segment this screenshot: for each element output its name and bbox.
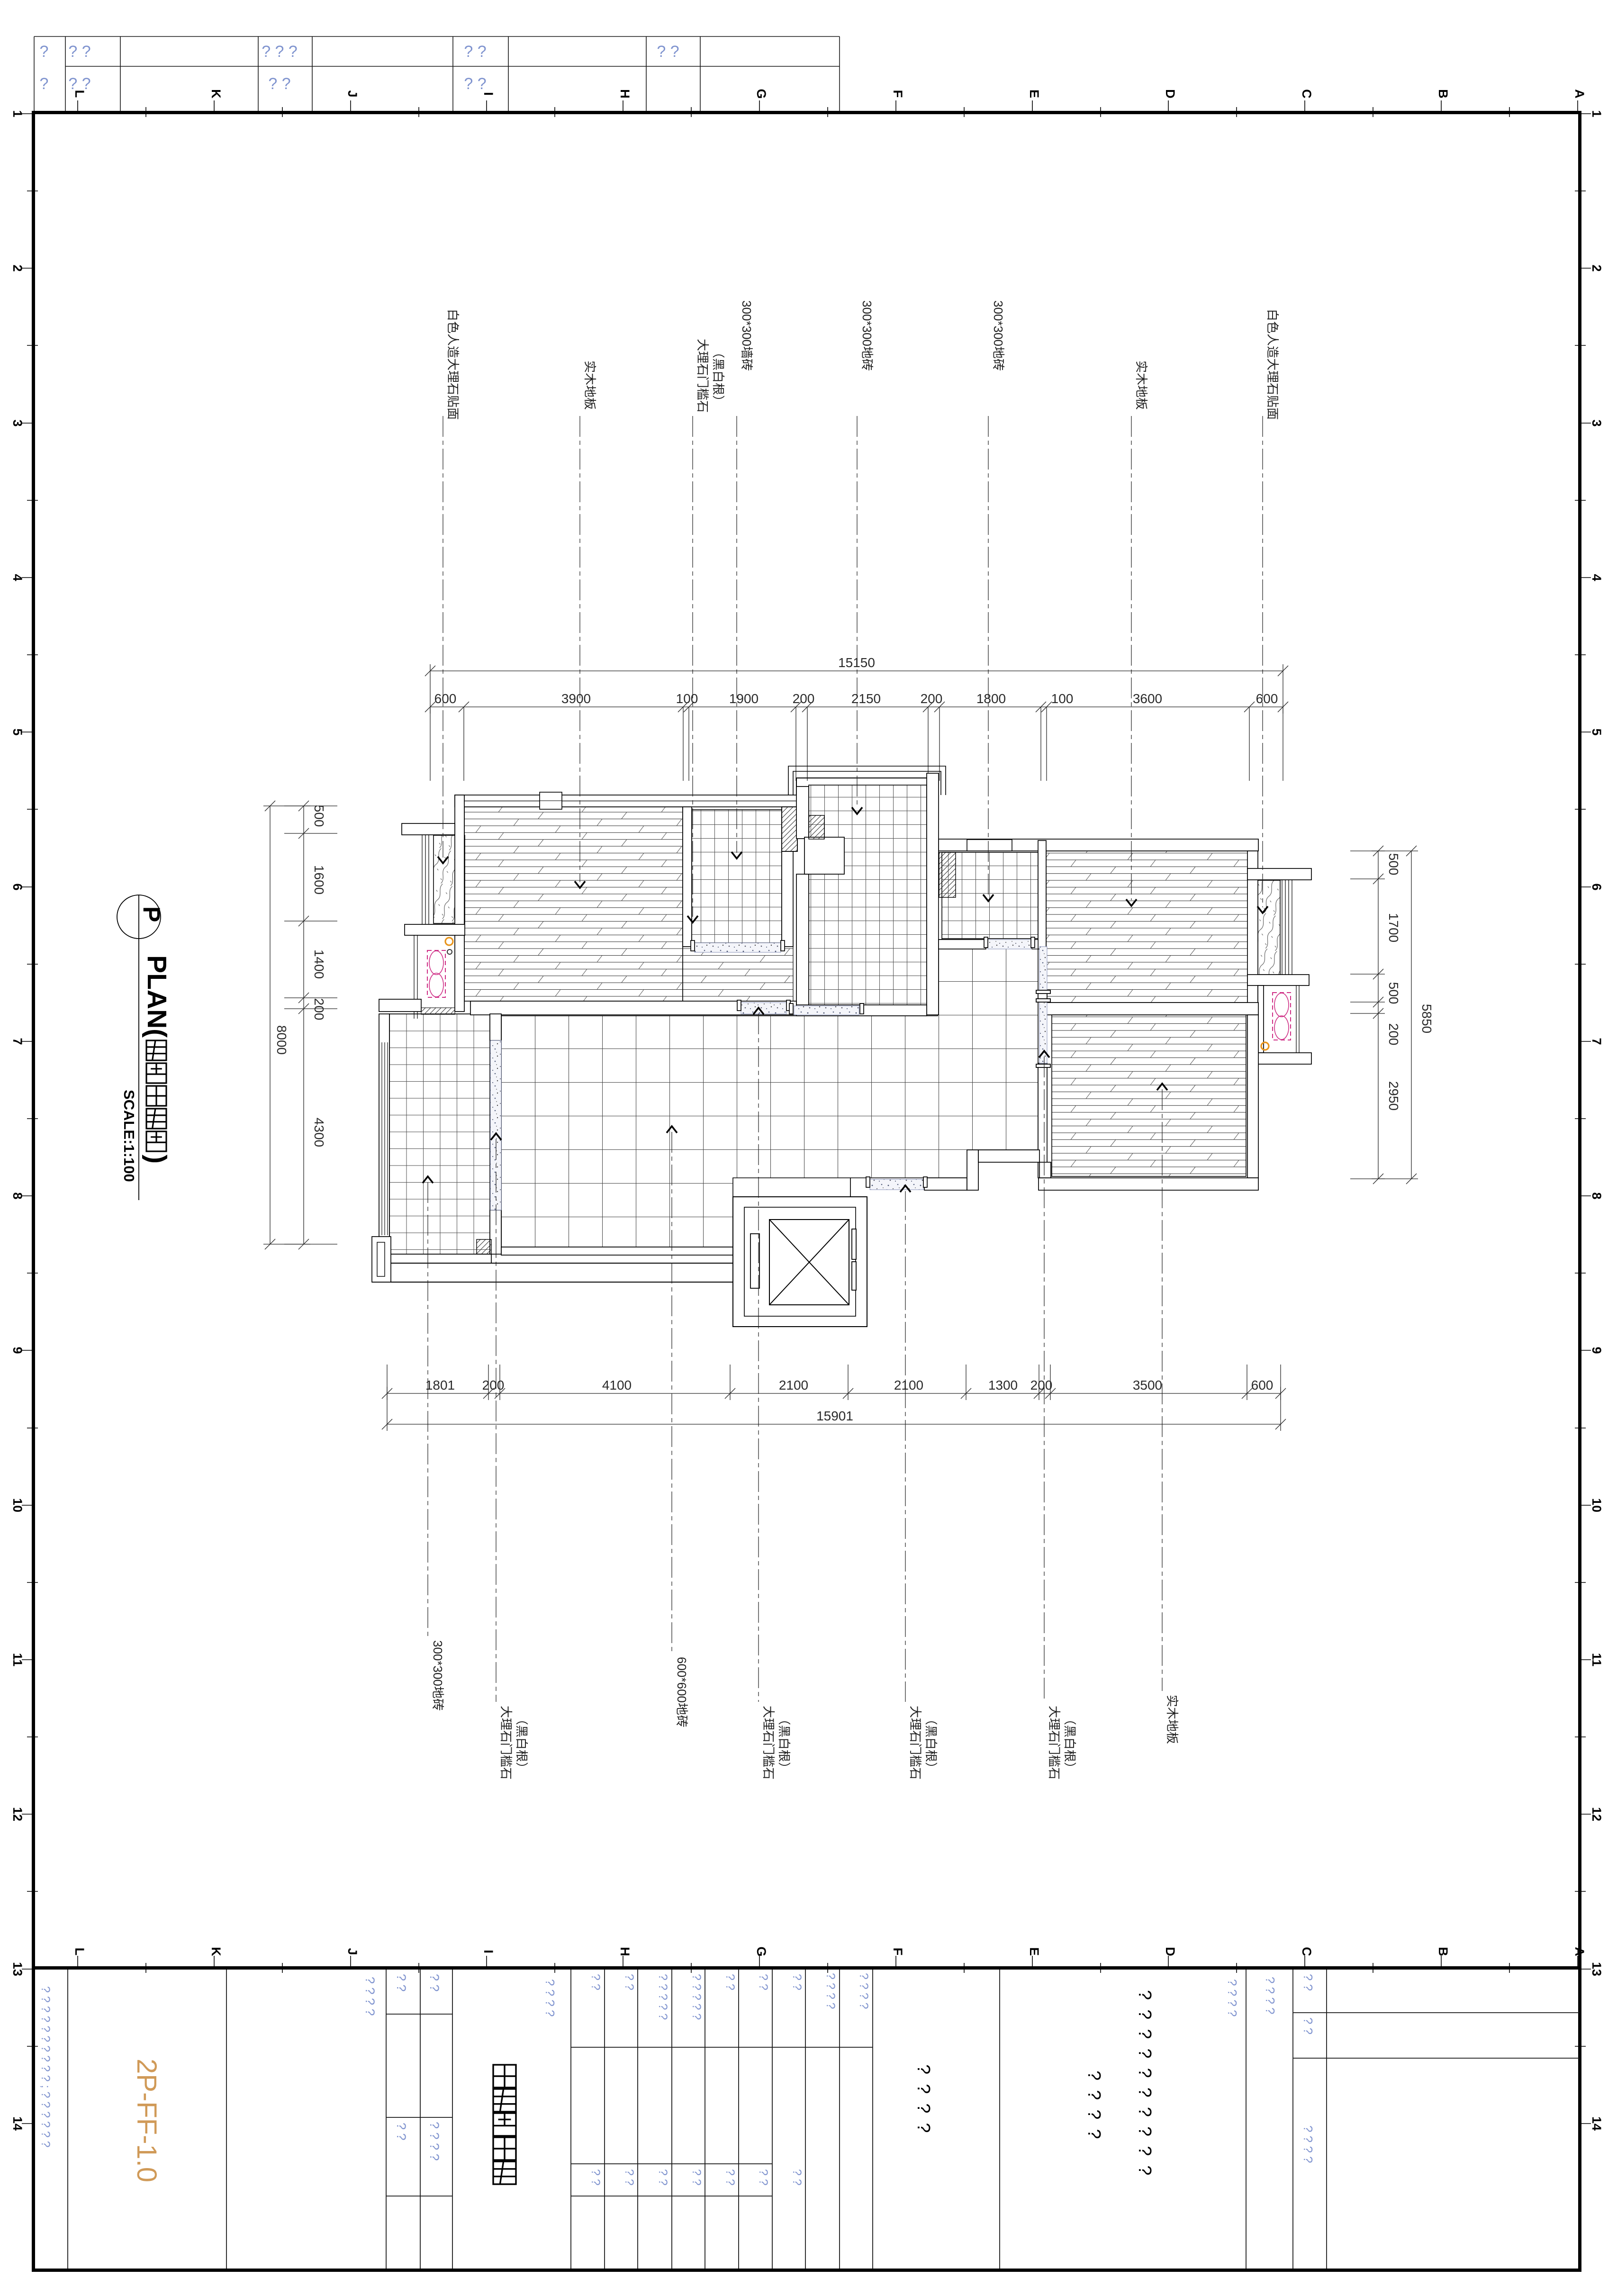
svg-text:? ?: ? ? xyxy=(589,2169,602,2186)
svg-text:? ?: ? ? xyxy=(723,1974,737,1990)
svg-text:大理石门槛石: 大理石门槛石 xyxy=(696,339,710,413)
svg-text:? ?: ? ? xyxy=(68,43,90,61)
svg-text:1400: 1400 xyxy=(312,949,326,979)
svg-text:B: B xyxy=(1436,89,1450,99)
svg-text:实木地板: 实木地板 xyxy=(1134,361,1148,410)
svg-text:（黑白根）: （黑白根） xyxy=(924,1713,938,1774)
svg-text:? ? ? ?: ? ? ? ? xyxy=(1263,1977,1277,2015)
svg-text:10: 10 xyxy=(1590,1498,1604,1512)
svg-text:H: H xyxy=(618,89,632,99)
svg-text:??????????: ?????????? xyxy=(1135,1990,1155,2185)
svg-text:?: ? xyxy=(40,75,49,93)
svg-text:B: B xyxy=(1436,1947,1450,1956)
svg-text:（黑白根）: （黑白根） xyxy=(1063,1713,1077,1774)
svg-text:2150: 2150 xyxy=(851,691,881,706)
svg-text:? ?: ? ? xyxy=(757,2169,770,2186)
svg-text:5: 5 xyxy=(1590,728,1604,735)
svg-text:（黑白根）: （黑白根） xyxy=(515,1713,529,1774)
svg-text:? ?: ? ? xyxy=(464,43,486,61)
svg-text:200: 200 xyxy=(1030,1378,1053,1392)
svg-text:? ?: ? ? xyxy=(1301,1974,1315,1991)
svg-text:13: 13 xyxy=(1590,1962,1604,1976)
svg-text:2: 2 xyxy=(1590,264,1604,271)
svg-text:? ?: ? ? xyxy=(790,2169,804,2186)
svg-text:? ? ? ?: ? ? ? ? xyxy=(857,1973,870,2009)
svg-text:7: 7 xyxy=(1590,1038,1604,1045)
svg-text:? ?: ? ? xyxy=(589,1974,602,1990)
svg-text:600: 600 xyxy=(1251,1378,1274,1392)
svg-text:I: I xyxy=(481,1950,496,1953)
svg-text:? ?: ? ? xyxy=(427,1974,442,1992)
svg-text:P: P xyxy=(138,906,165,922)
svg-text:14: 14 xyxy=(1590,2116,1604,2131)
svg-text:F: F xyxy=(891,1948,905,1956)
svg-text:实木地板: 实木地板 xyxy=(583,361,597,410)
svg-text:? ? ? ? ?: ? ? ? ? ? xyxy=(690,1974,703,2020)
svg-text:? ?: ? ? xyxy=(723,2169,737,2186)
svg-text:3500: 3500 xyxy=(1133,1378,1162,1392)
svg-text:J: J xyxy=(345,1948,360,1955)
svg-text:? ?: ? ? xyxy=(623,2169,636,2186)
svg-text:大理石门槛石: 大理石门槛石 xyxy=(908,1706,922,1780)
svg-text:? ? ? ?: ? ? ? ? xyxy=(543,1979,557,2017)
svg-text:2100: 2100 xyxy=(894,1378,923,1392)
svg-text:3600: 3600 xyxy=(1133,691,1162,706)
svg-text:C: C xyxy=(1300,1947,1314,1956)
svg-text:J: J xyxy=(345,90,360,97)
svg-text:白色人造大理石贴面: 白色人造大理石贴面 xyxy=(446,309,460,420)
svg-text:1801: 1801 xyxy=(425,1378,455,1392)
svg-text:2950: 2950 xyxy=(1386,1081,1401,1111)
svg-text:500: 500 xyxy=(1386,982,1401,1004)
svg-text:3: 3 xyxy=(1590,419,1604,426)
svg-text:E: E xyxy=(1027,1947,1041,1956)
svg-text:1300: 1300 xyxy=(988,1378,1018,1392)
svg-text:? ? ? ? ? ? ? ? ? ? ; ? ? ? ?: ? ? ? ? ? ? ? ? ? ? ; ? ? ? ? ? ? xyxy=(39,1986,52,2148)
svg-text:12: 12 xyxy=(1590,1807,1604,1821)
svg-text:K: K xyxy=(209,1947,223,1956)
svg-text:I: I xyxy=(481,92,496,96)
svg-text:500: 500 xyxy=(312,805,326,827)
svg-text:A: A xyxy=(1572,1947,1587,1956)
svg-text:8: 8 xyxy=(1590,1192,1604,1199)
svg-text:? ?: ? ? xyxy=(657,43,679,61)
svg-text:3900: 3900 xyxy=(561,691,591,706)
svg-text:K: K xyxy=(209,89,223,99)
svg-text:100: 100 xyxy=(676,691,698,706)
svg-text:1900: 1900 xyxy=(729,691,759,706)
svg-text:白色人造大理石贴面: 白色人造大理石贴面 xyxy=(1265,309,1280,420)
svg-text:（黑白根）: （黑白根） xyxy=(777,1713,791,1774)
svg-text:? ?: ? ? xyxy=(656,2169,669,2186)
svg-text:????: ???? xyxy=(913,2064,933,2142)
svg-text:2P-FF-1.0: 2P-FF-1.0 xyxy=(131,2059,162,2182)
svg-text:L: L xyxy=(72,1948,87,1956)
svg-text:D: D xyxy=(1163,89,1177,99)
svg-text:200: 200 xyxy=(312,998,326,1021)
svg-text:200: 200 xyxy=(793,691,815,706)
svg-text:300*300地砖: 300*300地砖 xyxy=(991,300,1005,371)
svg-text:100: 100 xyxy=(1051,691,1074,706)
svg-text:大理石门槛石: 大理石门槛石 xyxy=(761,1706,776,1780)
svg-text:8000: 8000 xyxy=(274,1025,289,1055)
svg-text:G: G xyxy=(754,89,768,99)
svg-text:5850: 5850 xyxy=(1419,1004,1434,1033)
svg-text:? ?: ? ? xyxy=(268,75,290,93)
svg-text:200: 200 xyxy=(921,691,943,706)
svg-text:? ? ? ? ?: ? ? ? ? ? xyxy=(656,1974,669,2020)
svg-text:1700: 1700 xyxy=(1386,913,1401,942)
svg-text:300*300墙砖: 300*300墙砖 xyxy=(740,300,754,371)
svg-text:300*300地砖: 300*300地砖 xyxy=(860,300,874,371)
svg-text:1: 1 xyxy=(1590,110,1604,117)
svg-text:? ?: ? ? xyxy=(757,1974,770,1990)
svg-text:200: 200 xyxy=(1386,1023,1401,1046)
svg-text:): ) xyxy=(142,1155,172,1164)
svg-text:SCALE:1:100: SCALE:1:100 xyxy=(121,1090,137,1182)
svg-text:600*600地砖: 600*600地砖 xyxy=(675,1657,689,1727)
svg-text:15901: 15901 xyxy=(816,1409,853,1423)
svg-text:9: 9 xyxy=(1590,1347,1604,1354)
svg-text:11: 11 xyxy=(1590,1653,1604,1667)
svg-text:? ? ? ?: ? ? ? ? xyxy=(824,1973,837,2009)
svg-text:4: 4 xyxy=(1590,574,1604,581)
svg-text:A: A xyxy=(1572,89,1587,99)
svg-text:F: F xyxy=(891,90,905,98)
svg-text:? ?: ? ? xyxy=(1301,2017,1315,2034)
svg-text:????: ???? xyxy=(1084,2070,1104,2149)
svg-text:? ? ? ?: ? ? ? ? xyxy=(427,2122,442,2161)
svg-text:C: C xyxy=(1300,89,1314,99)
svg-text:? ?: ? ? xyxy=(790,1974,804,1990)
svg-text:H: H xyxy=(618,1947,632,1956)
svg-text:大理石门槛石: 大理石门槛石 xyxy=(499,1706,513,1780)
svg-text:? ? ? ?: ? ? ? ? xyxy=(1225,1979,1239,2017)
svg-text:G: G xyxy=(754,1946,768,1956)
svg-text:? ? ? ?: ? ? ? ? xyxy=(363,1977,377,2016)
svg-text:D: D xyxy=(1163,1947,1177,1956)
svg-text:200: 200 xyxy=(482,1378,505,1392)
svg-text:?: ? xyxy=(40,43,49,61)
svg-text:1800: 1800 xyxy=(976,691,1006,706)
svg-text:E: E xyxy=(1027,90,1041,98)
svg-text:500: 500 xyxy=(1386,853,1401,876)
svg-text:1600: 1600 xyxy=(312,865,326,895)
svg-text:PLAN(: PLAN( xyxy=(142,955,172,1038)
svg-text:L: L xyxy=(72,90,87,98)
svg-text:600: 600 xyxy=(434,691,457,706)
svg-text:4100: 4100 xyxy=(602,1378,632,1392)
svg-text:6: 6 xyxy=(1590,883,1604,890)
svg-text:? ?: ? ? xyxy=(394,2123,408,2141)
svg-text:4300: 4300 xyxy=(312,1118,326,1147)
svg-text:实木地板: 实木地板 xyxy=(1165,1695,1179,1744)
svg-text:300*300地砖: 300*300地砖 xyxy=(431,1640,445,1711)
svg-text:? ?: ? ? xyxy=(464,75,486,93)
svg-text:? ? ?: ? ? ? xyxy=(262,43,298,61)
svg-text:? ? ? ?: ? ? ? ? xyxy=(1301,2125,1315,2163)
svg-text:? ?: ? ? xyxy=(623,1974,636,1990)
svg-text:600: 600 xyxy=(1256,691,1278,706)
svg-text:2100: 2100 xyxy=(779,1378,808,1392)
svg-text:（黑白根）: （黑白根） xyxy=(711,346,725,407)
svg-text:15150: 15150 xyxy=(838,655,875,670)
svg-text:? ?: ? ? xyxy=(394,1974,408,1992)
svg-text:? ?: ? ? xyxy=(690,2169,703,2186)
svg-text:大理石门槛石: 大理石门槛石 xyxy=(1047,1706,1061,1780)
